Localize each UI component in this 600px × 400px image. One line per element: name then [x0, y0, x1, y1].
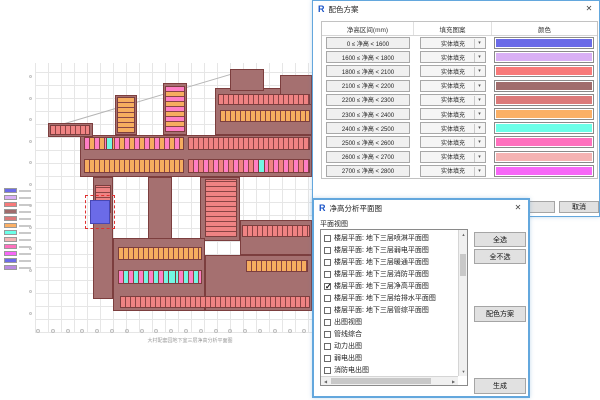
plan-view-item[interactable]: 楼层平面: 地下三层消防平面图 [321, 268, 467, 280]
select-none-button[interactable]: 全不选 [474, 249, 526, 264]
plan-view-label: 楼层平面: 地下三层弱电平面图 [334, 245, 429, 255]
range-cell[interactable]: 2700 ≤ 净高 < 2800 [326, 165, 410, 177]
stall-row [117, 97, 135, 133]
color-scheme-row: 2200 ≤ 净高 < 2300实体填充▾ [322, 93, 597, 107]
dropdown-arrow-icon[interactable]: ▾ [474, 39, 484, 48]
color-scheme-row: 1800 ≤ 净高 < 2100实体填充▾ [322, 64, 597, 78]
range-cell[interactable]: 1800 ≤ 净高 < 2100 [326, 65, 410, 77]
stall-row [120, 296, 310, 308]
stall-row [205, 179, 237, 237]
range-cell[interactable]: 2400 ≤ 净高 < 2500 [326, 122, 410, 134]
dropdown-arrow-icon[interactable]: ▾ [474, 82, 484, 91]
dropdown-arrow-icon[interactable]: ▾ [474, 96, 484, 105]
col-header-pattern: 填充图案 [414, 22, 492, 35]
plan-legend [4, 188, 31, 272]
color-swatch[interactable] [494, 151, 594, 163]
stall-cyan [168, 270, 176, 284]
fill-pattern-dropdown[interactable]: 实体填充▾ [420, 94, 486, 106]
plan-view-list[interactable]: 楼层平面: 地下三层喷淋平面图楼层平面: 地下三层弱电平面图楼层平面: 地下三层… [320, 229, 468, 386]
plan-view-item[interactable]: 出图视图 [321, 316, 467, 328]
axis-bubbles-bottom [36, 329, 336, 333]
stall-row [165, 86, 185, 132]
stall-row [246, 260, 308, 272]
stall-cyan [258, 159, 265, 173]
checkbox[interactable] [324, 259, 331, 266]
checkbox[interactable] [324, 271, 331, 278]
app-window: 大村配套园地下室三层净高分析平面图 R 配色方案 ✕ 净高区间(mm) 填充图案… [0, 0, 600, 400]
checkbox[interactable] [324, 319, 331, 326]
fill-pattern-dropdown[interactable]: 实体填充▾ [420, 65, 486, 77]
range-cell[interactable]: 2600 ≤ 净高 < 2700 [326, 151, 410, 163]
range-cell[interactable]: 1600 ≤ 净高 < 1800 [326, 51, 410, 63]
checkbox[interactable] [324, 355, 331, 362]
checkbox[interactable]: ✓ [324, 283, 331, 290]
range-cell[interactable]: 2100 ≤ 净高 < 2200 [326, 80, 410, 92]
range-cell[interactable]: 2200 ≤ 净高 < 2300 [326, 94, 410, 106]
dialog-title: 配色方案 [329, 4, 359, 15]
app-logo-icon: R [318, 5, 325, 14]
stall-row [50, 125, 90, 135]
plan-view-item[interactable]: 动力出图 [321, 340, 467, 352]
color-swatch[interactable] [494, 136, 594, 148]
plan-view-item[interactable]: 楼层平面: 地下三层弱电平面图 [321, 244, 467, 256]
plan-view-label: 楼层平面: 地下三层暖通平面图 [334, 257, 429, 267]
dropdown-arrow-icon[interactable]: ▾ [474, 138, 484, 147]
color-scheme-dialog: R 配色方案 ✕ 净高区间(mm) 填充图案 颜色 0 ≤ 净高 < 1600实… [312, 0, 600, 217]
close-icon[interactable]: ✕ [583, 3, 595, 15]
plan-view-label: 楼层平面: 地下三层喷淋平面图 [334, 233, 429, 243]
dropdown-arrow-icon[interactable]: ▾ [474, 53, 484, 62]
dialog-title: 净高分析平面图 [330, 203, 383, 214]
color-scheme-button[interactable]: 配色方案 [474, 306, 526, 322]
selection-box [85, 195, 115, 229]
horizontal-scrollbar[interactable]: ◀ ▶ [321, 376, 458, 385]
fill-pattern-dropdown[interactable]: 实体填充▾ [420, 122, 486, 134]
dropdown-arrow-icon[interactable]: ▾ [474, 67, 484, 76]
dropdown-arrow-icon[interactable]: ▾ [474, 167, 484, 176]
close-icon[interactable]: ✕ [512, 202, 524, 214]
color-scheme-row: 2300 ≤ 净高 < 2400实体填充▾ [322, 107, 597, 121]
stall-row [118, 247, 202, 260]
plan-view-item[interactable]: 管线综合 [321, 328, 467, 340]
range-cell[interactable]: 2300 ≤ 净高 < 2400 [326, 108, 410, 120]
stall-row [220, 110, 310, 122]
plan-view-label: 管线综合 [334, 329, 362, 339]
dropdown-arrow-icon[interactable]: ▾ [474, 110, 484, 119]
cancel-button[interactable]: 取消 [559, 201, 599, 213]
table-header: 净高区间(mm) 填充图案 颜色 [322, 22, 597, 36]
plan-view-label: 楼层平面: 地下三层管综平面图 [334, 305, 429, 315]
scroll-left-icon[interactable]: ◀ [321, 377, 330, 386]
scrollbar-thumb[interactable] [331, 378, 431, 384]
dialog-titlebar[interactable]: R 净高分析平面图 ✕ [314, 200, 528, 216]
color-swatch[interactable] [494, 80, 594, 92]
color-scheme-row: 0 ≤ 净高 < 1600实体填充▾ [322, 36, 597, 50]
plan-view-item[interactable]: 楼层平面: 地下三层暖通平面图 [321, 256, 467, 268]
range-cell[interactable]: 0 ≤ 净高 < 1600 [326, 37, 410, 49]
select-all-button[interactable]: 全选 [474, 232, 526, 247]
dropdown-arrow-icon[interactable]: ▾ [474, 124, 484, 133]
dialog-titlebar[interactable]: R 配色方案 ✕ [313, 1, 599, 17]
legend-swatch [4, 223, 17, 228]
plan-view-label: 出图视图 [334, 317, 362, 327]
color-scheme-table: 净高区间(mm) 填充图案 颜色 0 ≤ 净高 < 1600实体填充▾1600 … [321, 21, 598, 179]
color-swatch[interactable] [494, 108, 594, 120]
stall-cyan [106, 137, 113, 150]
legend-swatch [4, 244, 17, 249]
plan-view-item[interactable]: 楼层平面: 地下三层给排水平面图 [321, 292, 467, 304]
checkbox[interactable] [324, 331, 331, 338]
fill-pattern-dropdown[interactable]: 实体填充▾ [420, 108, 486, 120]
app-logo-icon: R [319, 204, 326, 213]
checkbox[interactable] [324, 235, 331, 242]
scroll-down-icon[interactable]: ▼ [459, 367, 468, 376]
legend-swatch [4, 202, 17, 207]
aisle-region [148, 177, 172, 241]
stall-row [218, 94, 310, 105]
legend-swatch [4, 230, 17, 235]
color-swatch[interactable] [494, 37, 594, 49]
generate-button[interactable]: 生成 [474, 378, 526, 394]
plan-view-label: 楼层平面: 地下三层净高平面图 [334, 281, 429, 291]
plan-view-item[interactable]: 楼层平面: 地下三层管综平面图 [321, 304, 467, 316]
plan-views-dialog: R 净高分析平面图 ✕ 平面视图 楼层平面: 地下三层喷淋平面图楼层平面: 地下… [312, 198, 530, 398]
legend-swatch [4, 195, 17, 200]
color-swatch[interactable] [494, 65, 594, 77]
stall-row [188, 137, 310, 150]
plan-view-label: 动力出图 [334, 341, 362, 351]
legend-swatch [4, 188, 17, 193]
color-scheme-row: 2400 ≤ 净高 < 2500实体填充▾ [322, 121, 597, 135]
color-swatch[interactable] [494, 122, 594, 134]
scrollbar-thumb[interactable] [460, 254, 466, 276]
scroll-right-icon[interactable]: ▶ [449, 377, 458, 386]
fill-pattern-dropdown[interactable]: 实体填充▾ [420, 51, 486, 63]
legend-swatch [4, 258, 17, 263]
color-scheme-row: 2700 ≤ 净高 < 2800实体填充▾ [322, 164, 597, 178]
stall-row [242, 225, 310, 237]
stall-row [188, 159, 310, 173]
legend-swatch [4, 265, 17, 270]
fill-pattern-dropdown[interactable]: 实体填充▾ [420, 151, 486, 163]
plan-view-label: 楼层平面: 地下三层给排水平面图 [334, 293, 436, 303]
color-scheme-row: 2600 ≤ 净高 < 2700实体填充▾ [322, 150, 597, 164]
vertical-scrollbar[interactable]: ▲ ▼ [458, 230, 467, 376]
checkbox[interactable] [324, 367, 331, 374]
color-scheme-row: 1600 ≤ 净高 < 1800实体填充▾ [322, 50, 597, 64]
fill-pattern-dropdown[interactable]: 实体填充▾ [420, 136, 486, 148]
checkbox[interactable] [324, 343, 331, 350]
fill-pattern-dropdown[interactable]: 实体填充▾ [420, 165, 486, 177]
scroll-up-icon[interactable]: ▲ [459, 230, 468, 239]
legend-swatch [4, 209, 17, 214]
plan-view-item[interactable]: 弱电出图 [321, 352, 467, 364]
color-scheme-row: 2100 ≤ 净高 < 2200实体填充▾ [322, 79, 597, 93]
stall-row [84, 137, 184, 150]
color-swatch[interactable] [494, 94, 594, 106]
color-swatch[interactable] [494, 51, 594, 63]
checkbox[interactable] [324, 247, 331, 254]
stall-row [84, 159, 184, 173]
plan-view-item[interactable]: ✓楼层平面: 地下三层净高平面图 [321, 280, 467, 292]
drawing-canvas[interactable]: 大村配套园地下室三层净高分析平面图 [0, 55, 346, 360]
plan-view-label: 楼层平面: 地下三层消防平面图 [334, 269, 429, 279]
aisle-region [230, 69, 264, 91]
plan-view-label: 消防电出图 [334, 365, 369, 375]
plan-view-item[interactable]: 楼层平面: 地下三层喷淋平面图 [321, 232, 467, 244]
col-header-range: 净高区间(mm) [322, 22, 414, 35]
checkbox[interactable] [324, 295, 331, 302]
drawing-caption: 大村配套园地下室三层净高分析平面图 [90, 337, 290, 344]
plan-view-label: 弱电出图 [334, 353, 362, 363]
group-label: 平面视图 [320, 219, 348, 229]
checkbox[interactable] [324, 307, 331, 314]
plan-view-item[interactable]: 消防电出图 [321, 364, 467, 376]
color-scheme-row: 2500 ≤ 净高 < 2600实体填充▾ [322, 135, 597, 149]
fill-pattern-dropdown[interactable]: 实体填充▾ [420, 37, 486, 49]
stall-row [118, 270, 202, 284]
legend-swatch [4, 237, 17, 242]
axis-bubbles-left [29, 75, 32, 315]
range-cell[interactable]: 2500 ≤ 净高 < 2600 [326, 136, 410, 148]
fill-pattern-dropdown[interactable]: 实体填充▾ [420, 80, 486, 92]
dropdown-arrow-icon[interactable]: ▾ [474, 153, 484, 162]
col-header-color: 颜色 [492, 22, 597, 35]
color-swatch[interactable] [494, 165, 594, 177]
legend-swatch [4, 216, 17, 221]
legend-swatch [4, 251, 17, 256]
